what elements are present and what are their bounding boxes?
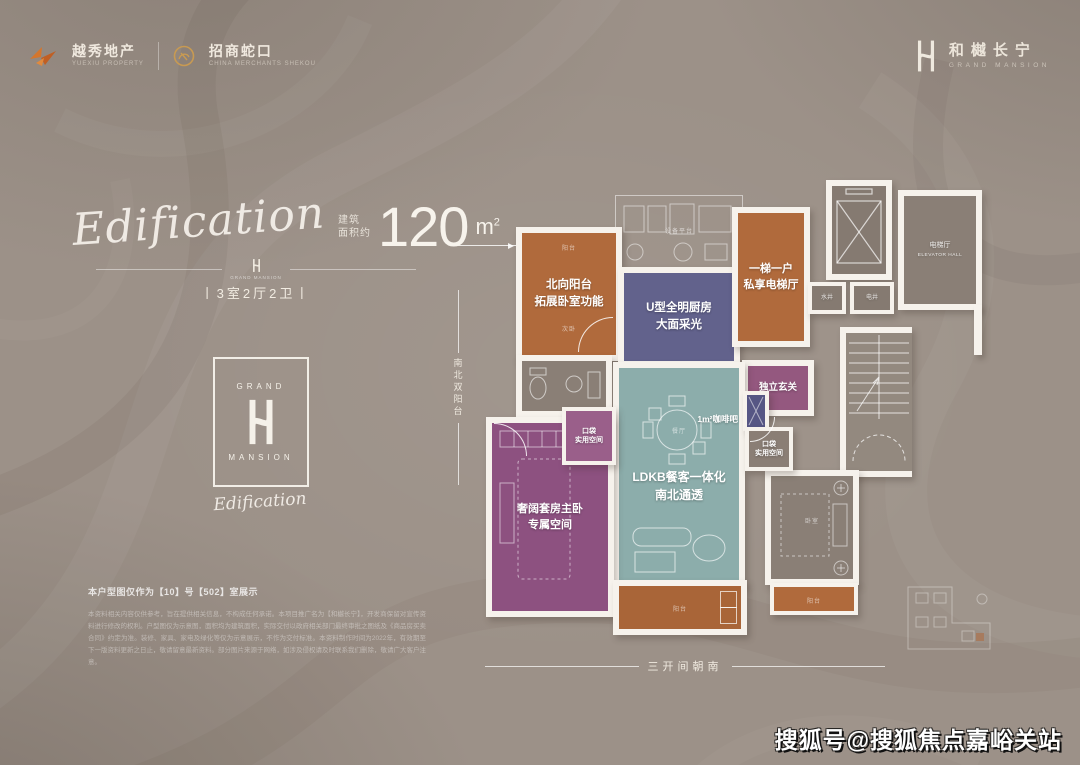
- dimension-bottom: 三开间朝南: [485, 658, 885, 674]
- room-public-elevator-hall: 电梯厅 ELEVATOR HALL: [898, 190, 982, 310]
- room-electric-shaft: 电井: [850, 282, 894, 314]
- coffee-bar-label: 1m²咖啡吧: [650, 413, 738, 426]
- divider-mini-logo: GRAND MANSION: [230, 258, 282, 280]
- water-shaft-label: 水井: [821, 294, 833, 303]
- private-elevator-label-line1: 一梯一户: [744, 261, 799, 278]
- grand-mansion-logo-box: GRAND MANSION: [213, 357, 309, 487]
- logo-box-bottom-word: MANSION: [228, 453, 293, 462]
- elevator-hall-label-en: ELEVATOR HALL: [918, 252, 963, 259]
- elevator-shaft-symbol: [833, 187, 885, 273]
- disclaimer-body: 本资料相关内容仅供参考，旨在提供相关信息，不构成任何承诺。本项目推广名为【和樾长…: [88, 609, 426, 669]
- room-pocket-space-left: 口袋 实用空间: [562, 407, 616, 465]
- kitchen-label-line2: 大面采光: [646, 317, 712, 334]
- wall-segment: [974, 305, 982, 355]
- pocket-left-label-line1: 口袋: [575, 427, 603, 436]
- room-south-balcony: 阳台: [613, 580, 747, 635]
- bath-fixtures: [524, 364, 604, 408]
- sohu-watermark: 搜狐号@搜狐焦点嘉峪关站: [775, 721, 1062, 755]
- brand-logo-block: 和樾长宁 GRAND MANSION: [913, 38, 1050, 74]
- dimension-left-label: 南北双阳台: [452, 353, 465, 423]
- area-block: 建筑 面积约 120 m2: [338, 202, 500, 252]
- grand-mansion-monogram-icon: [913, 38, 939, 74]
- yuexiu-logo-text: 越秀地产: [72, 44, 144, 59]
- master-label-line2: 专属空间: [517, 517, 583, 534]
- equipment-fixtures: [621, 202, 737, 272]
- balcony-fixture: [720, 591, 737, 608]
- floor-plan: 设备平台 阳台 北向阳台 拓展卧室功能 次卧 U型全明厨房 大面采: [450, 155, 995, 690]
- north-balcony-label-line2: 拓展卧室功能: [535, 294, 604, 311]
- header-logos-left: 越秀地产 YUEXIU PROPERTY 招商蛇口 CHINA MERCHANT…: [28, 42, 316, 70]
- room-private-elevator-hall: 一梯一户 私享电梯厅: [732, 207, 810, 347]
- ldk-label-line1: LDKB餐客一体化: [619, 468, 739, 486]
- brand-name-cn: 和樾长宁: [949, 43, 1050, 60]
- ldk-label-line2: 南北通透: [619, 486, 739, 504]
- monogram-large-icon: [244, 397, 278, 447]
- kitchen-label-line1: U型全明厨房: [646, 300, 712, 317]
- pocket-right-label-line2: 实用空间: [755, 449, 783, 458]
- faint-adjacent-sketch: [902, 583, 994, 655]
- neighbor-bedroom-tag: 卧室: [771, 516, 853, 525]
- master-label-line1: 奢阔套房主卧: [517, 501, 583, 518]
- equipment-label: 设备平台: [616, 226, 742, 235]
- room-water-shaft: 水井: [808, 282, 846, 314]
- disclaimer-title: 本户型图仅作为【10】号【502】室展示: [88, 585, 426, 598]
- room-neighbor-bedroom: 卧室: [765, 470, 859, 585]
- north-balcony-tag: 阳台: [522, 243, 616, 252]
- yuexiu-logo-subtext: YUEXIU PROPERTY: [72, 61, 144, 68]
- brand-name-en: GRAND MANSION: [949, 62, 1050, 69]
- cmsk-logo-text: 招商蛇口: [209, 44, 316, 59]
- electric-shaft-label: 电井: [866, 294, 878, 303]
- room-layout-summary: 丨3室2厅2卫丨: [96, 283, 416, 302]
- room-stairwell: [840, 327, 912, 477]
- room-neighbor-balcony: 阳台: [770, 583, 858, 615]
- neighbor-bed-symbol: [771, 476, 853, 579]
- dining-tag: 餐厅: [619, 426, 739, 435]
- pocket-left-label-line2: 实用空间: [575, 436, 603, 445]
- pocket-right-label-line1: 口袋: [755, 440, 783, 449]
- divider-caption: GRAND MANSION: [230, 275, 282, 280]
- elevator-hall-label-cn: 电梯厅: [918, 241, 963, 252]
- room-ldk-living: 餐厅 LDKB餐客一体化 南北通透: [613, 362, 745, 587]
- balcony-fixture: [720, 607, 737, 624]
- area-caption-line2: 面积约: [338, 227, 371, 241]
- area-value: 120: [378, 202, 468, 252]
- area-caption-line1: 建筑: [338, 214, 371, 228]
- area-unit: m2: [475, 214, 499, 240]
- room-elevator-shaft: [826, 180, 892, 280]
- north-balcony-label-line1: 北向阳台: [535, 277, 604, 294]
- section-divider: GRAND MANSION: [96, 258, 416, 280]
- yuexiu-bird-icon: [28, 43, 58, 69]
- stairs-symbol: [849, 333, 909, 471]
- dimension-bottom-label: 三开间朝南: [648, 658, 723, 674]
- poster-background: 越秀地产 YUEXIU PROPERTY 招商蛇口 CHINA MERCHANT…: [0, 0, 1080, 765]
- cmsk-emblem-icon: [173, 45, 195, 67]
- monogram-mini-icon: [251, 258, 262, 273]
- logo-divider: [158, 42, 159, 70]
- cmsk-logo-subtext: CHINA MERCHANTS SHEKOU: [209, 61, 316, 68]
- private-elevator-label-line2: 私享电梯厅: [744, 277, 799, 294]
- dimension-left: 南北双阳台: [450, 290, 466, 485]
- room-kitchen: U型全明厨房 大面采光: [618, 267, 740, 367]
- disclaimer-block: 本户型图仅作为【10】号【502】室展示 本资料相关内容仅供参考，旨在提供相关信…: [88, 585, 426, 669]
- logo-box-top-word: GRAND: [237, 382, 286, 391]
- neighbor-balcony-tag: 阳台: [774, 596, 854, 605]
